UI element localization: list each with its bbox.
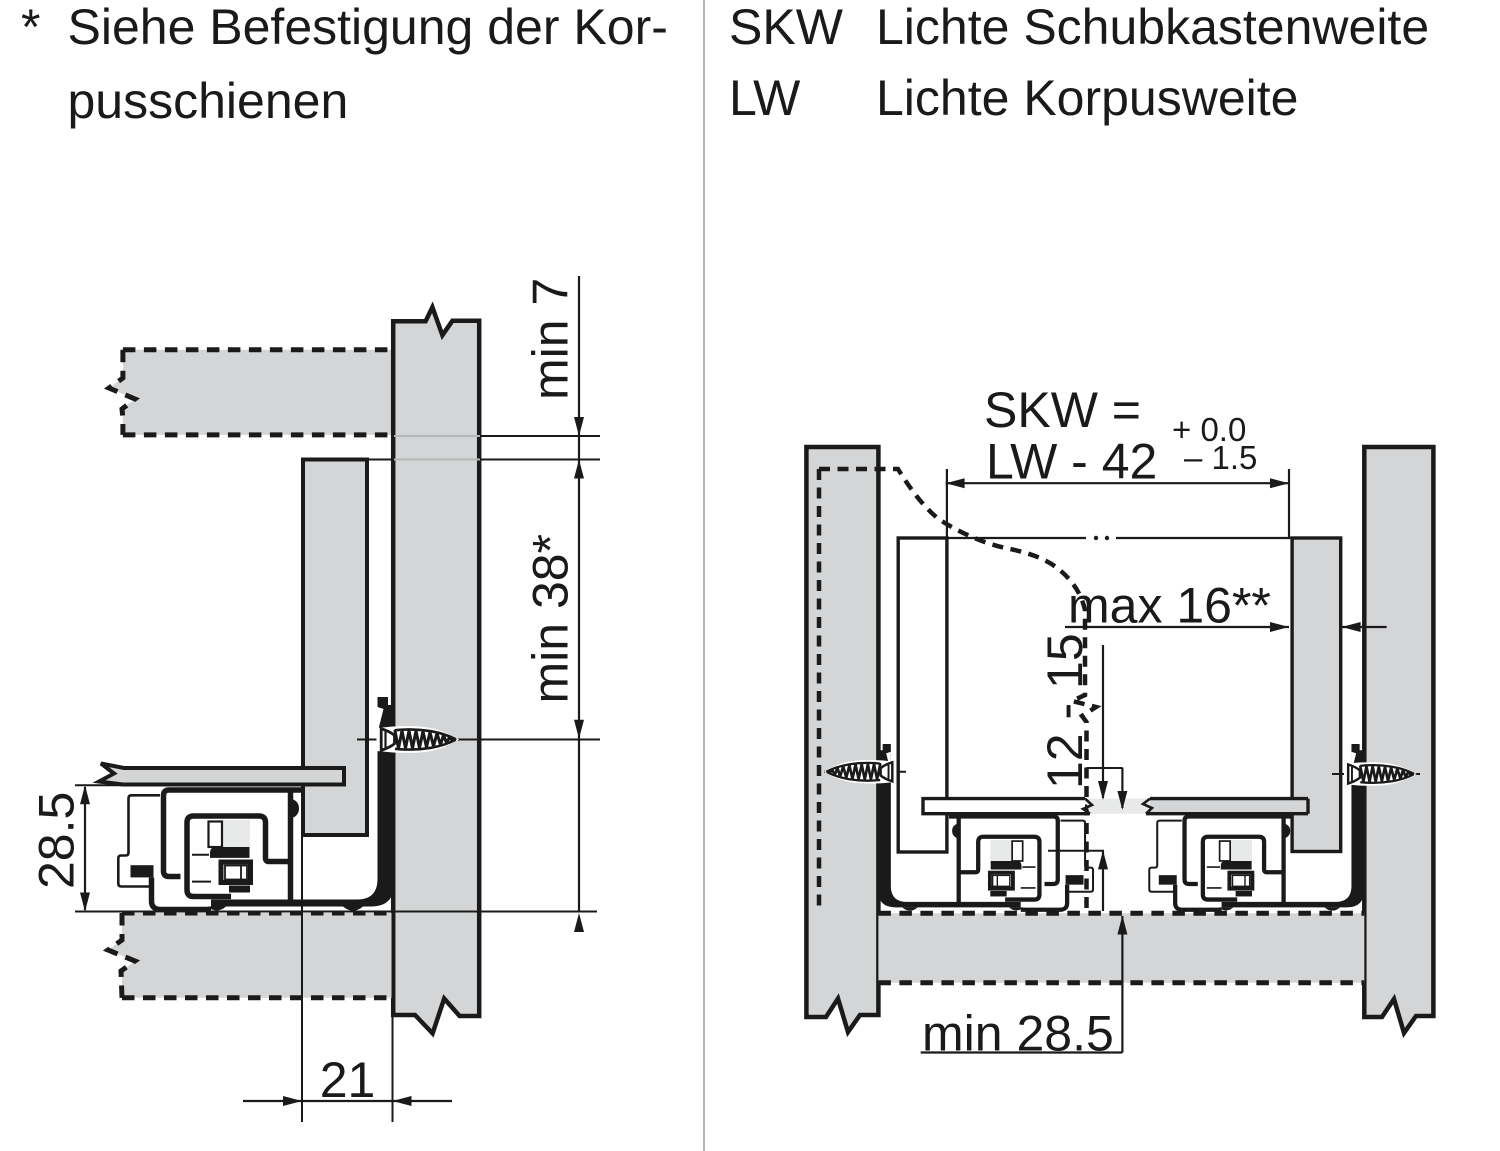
svg-text:28.5: 28.5 [29, 792, 85, 889]
svg-text:21: 21 [320, 1052, 376, 1108]
svg-text:min 38*: min 38* [523, 534, 579, 704]
svg-text:max 16**: max 16** [1068, 577, 1271, 633]
svg-text:SKW =: SKW = [984, 382, 1141, 438]
svg-text:12 - 15: 12 - 15 [1037, 633, 1093, 789]
svg-text:SKW: SKW [729, 0, 844, 55]
svg-text:pusschienen: pusschienen [68, 73, 349, 129]
svg-text:Lichte Korpusweite: Lichte Korpusweite [876, 70, 1298, 126]
svg-text:Lichte Schubkastenweite: Lichte Schubkastenweite [876, 0, 1429, 55]
svg-text:Siehe Befestigung der Kor-: Siehe Befestigung der Kor- [68, 0, 668, 55]
svg-text:*: * [21, 0, 40, 55]
svg-text:LW - 42: LW - 42 [986, 433, 1157, 489]
svg-text:– 1.5: – 1.5 [1184, 439, 1257, 476]
svg-text:LW: LW [729, 70, 801, 126]
svg-text:min 7: min 7 [523, 278, 579, 400]
svg-text:min 28.5: min 28.5 [922, 1006, 1114, 1062]
